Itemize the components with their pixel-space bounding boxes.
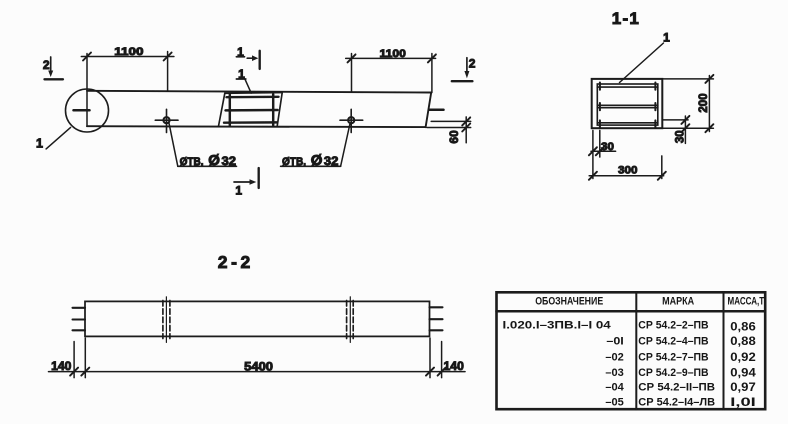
svg-text:30: 30 xyxy=(674,130,686,143)
svg-text:I.020.I–3ПВ.I–I 04: I.020.I–3ПВ.I–I 04 xyxy=(503,319,612,331)
svg-text:–0I: –0I xyxy=(606,336,623,348)
svg-text:0,94: 0,94 xyxy=(730,365,756,379)
svg-text:ОБОЗНАЧЕНИЕ: ОБОЗНАЧЕНИЕ xyxy=(535,295,603,307)
svg-text:140: 140 xyxy=(444,359,465,373)
svg-text:ØТВ.: ØТВ. xyxy=(282,156,306,168)
svg-text:140: 140 xyxy=(51,359,72,373)
svg-text:200: 200 xyxy=(698,93,710,112)
svg-text:СР 54.2–4–ПВ: СР 54.2–4–ПВ xyxy=(638,336,708,348)
svg-text:1100: 1100 xyxy=(380,48,406,60)
svg-text:–04: –04 xyxy=(605,382,624,394)
svg-text:–05: –05 xyxy=(605,396,624,408)
svg-text:СР 54.2–II–ПВ: СР 54.2–II–ПВ xyxy=(638,382,715,394)
svg-text:Ø: Ø xyxy=(208,152,220,169)
svg-text:0,88: 0,88 xyxy=(730,334,756,348)
svg-text:0,86: 0,86 xyxy=(730,320,756,334)
svg-text:2-2: 2-2 xyxy=(218,252,251,272)
svg-text:0,92: 0,92 xyxy=(730,350,756,364)
svg-text:–03: –03 xyxy=(605,367,623,379)
svg-text:1: 1 xyxy=(663,31,670,45)
svg-text:30: 30 xyxy=(601,141,614,153)
svg-text:СР 54.2–7–ПВ: СР 54.2–7–ПВ xyxy=(638,352,708,364)
svg-text:I,0I: I,0I xyxy=(730,395,756,409)
svg-text:300: 300 xyxy=(618,165,638,177)
svg-text:–02: –02 xyxy=(605,352,623,364)
svg-text:МАССА,Т: МАССА,Т xyxy=(728,295,765,307)
svg-text:СР 54.2–I4–ЛВ: СР 54.2–I4–ЛВ xyxy=(638,396,715,408)
svg-text:СР 54.2–2–ПВ: СР 54.2–2–ПВ xyxy=(638,319,708,331)
svg-text:2: 2 xyxy=(43,58,50,72)
svg-text:Ø: Ø xyxy=(311,152,323,169)
svg-text:СР 54.2–9–ПВ: СР 54.2–9–ПВ xyxy=(638,367,708,379)
svg-text:5400: 5400 xyxy=(244,359,273,373)
svg-text:ØТВ.: ØТВ. xyxy=(180,156,204,168)
svg-text:МАРКА: МАРКА xyxy=(662,295,694,307)
svg-text:1: 1 xyxy=(36,137,43,151)
svg-text:2: 2 xyxy=(469,57,476,71)
svg-text:32: 32 xyxy=(324,154,339,168)
svg-text:1: 1 xyxy=(235,184,242,198)
svg-text:1100: 1100 xyxy=(114,46,143,58)
svg-text:32: 32 xyxy=(222,154,237,168)
svg-text:1-1: 1-1 xyxy=(612,9,639,28)
svg-text:60: 60 xyxy=(447,130,461,144)
svg-text:0,97: 0,97 xyxy=(730,380,756,394)
